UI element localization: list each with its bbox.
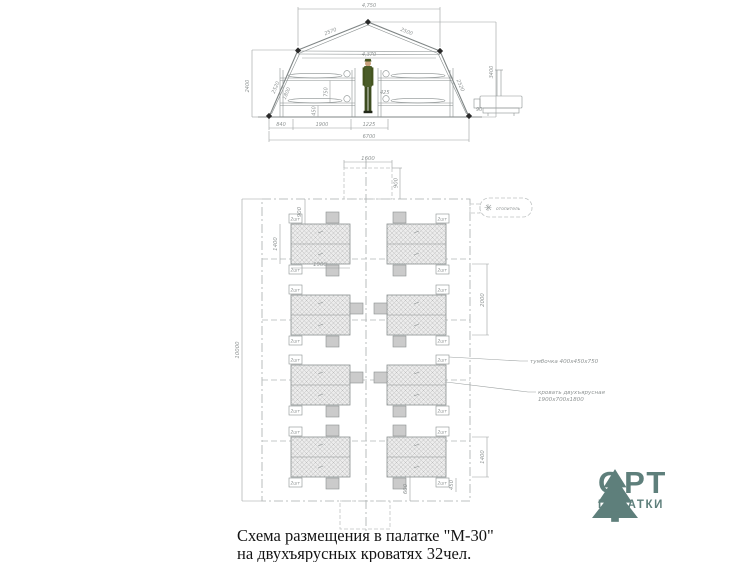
- callout-bed-line1: кровать двухъярусная: [538, 390, 606, 396]
- dim-bed-length: 1900: [313, 262, 327, 268]
- nightstand-qty: 2шт: [291, 409, 301, 415]
- dim-height-right: 3400: [489, 66, 495, 79]
- nightstand-qty: 2шт: [438, 409, 448, 415]
- nightstand-qty: 2шт: [291, 268, 301, 274]
- nightstand-qty: 2шт: [438, 358, 448, 364]
- dim-nightstand-width: 450: [449, 479, 455, 490]
- bed-block: [291, 295, 350, 335]
- dim-tier-gap: 750: [324, 87, 330, 97]
- fir-tree-icon: [592, 468, 638, 522]
- nightstand-qty: 2шт: [291, 430, 301, 436]
- plan-heater: отопитель: [470, 198, 532, 217]
- entrance-bottom: [340, 501, 390, 529]
- nightstand-qty: 2шт: [438, 481, 448, 487]
- nightstand-qty: 2шт: [438, 288, 448, 294]
- title-line1: Схема размещения в палатке "М-30": [237, 527, 494, 545]
- bed-block: [291, 437, 350, 477]
- bed-block: [387, 365, 446, 405]
- callout-bed-line2: 1900х700х1800: [538, 397, 584, 403]
- plan-dimensions: 1600 900 10000 900 1400 1900 2000 1400 4…: [235, 156, 489, 501]
- nightstand-qty: 2шт: [438, 268, 448, 274]
- dim-block-width-bottom: 1400: [480, 450, 486, 464]
- nightstand-qty: 2шт: [438, 217, 448, 223]
- bunk-bed-left: [280, 68, 355, 117]
- bed-block: [291, 365, 350, 405]
- bed-block: [387, 437, 446, 477]
- dim-wall-right: 2520: [455, 79, 466, 93]
- dim-height-left: 2400: [245, 80, 251, 93]
- dim-tier-low: 450: [312, 106, 318, 116]
- dim-entrance-width: 1600: [361, 156, 375, 162]
- callout-nightstand: тумбочка 400х450х750: [530, 359, 599, 365]
- bed-block: [387, 224, 446, 264]
- dim-entrance-depth: 900: [394, 177, 400, 188]
- tent-floor-plan: 2шт 2шт 2шт 2шт 2шт 2шт 2шт 2шт 2шт 2шт …: [230, 152, 650, 542]
- nightstand-qty: 2шт: [291, 339, 301, 345]
- tent-cross-section: 4,750 2570 2500 4,370 2400 2520 1800 252…: [230, 0, 540, 155]
- soldier-figure: [363, 59, 374, 113]
- drawing-page: 4,750 2570 2500 4,370 2400 2520 1800 252…: [0, 0, 750, 562]
- dim-peg: 90: [476, 107, 482, 113]
- dim-center-gap: 425: [380, 90, 390, 96]
- dim-row-spacing: 2000: [480, 293, 486, 307]
- dim-block-width: 1400: [273, 237, 279, 251]
- dim-foot-gap: 600: [403, 483, 409, 494]
- bed-block: [387, 295, 446, 335]
- nightstand-qty: 2шт: [291, 288, 301, 294]
- title-line2: на двухъярусных кроватях 32чел.: [237, 545, 494, 562]
- nightstand-qty: 2шт: [438, 339, 448, 345]
- dim-bottom-left: 840: [276, 122, 286, 128]
- dim-top-width: 4,750: [362, 3, 376, 9]
- nightstand-qty: 2шт: [291, 481, 301, 487]
- bed-block: [291, 224, 350, 264]
- dim-length: 10000: [235, 341, 241, 359]
- dim-roof-left: 2570: [324, 27, 338, 37]
- dim-bed-length: 1900: [316, 122, 329, 128]
- nightstand-qty: 2шт: [291, 358, 301, 364]
- nightstand-qty: 2шт: [438, 430, 448, 436]
- dim-inner-width: 4,370: [362, 52, 376, 58]
- drawing-title: Схема размещения в палатке "М-30" на дву…: [237, 527, 494, 562]
- brand-logo: ОРТ ПАЛАТКИ: [592, 468, 667, 511]
- entrance-top: [344, 168, 392, 199]
- dim-total-width: 6700: [363, 134, 376, 140]
- heater-label: отопитель: [496, 207, 521, 212]
- dim-aisle: 1225: [363, 122, 376, 128]
- dim-head-gap: 900: [297, 206, 303, 217]
